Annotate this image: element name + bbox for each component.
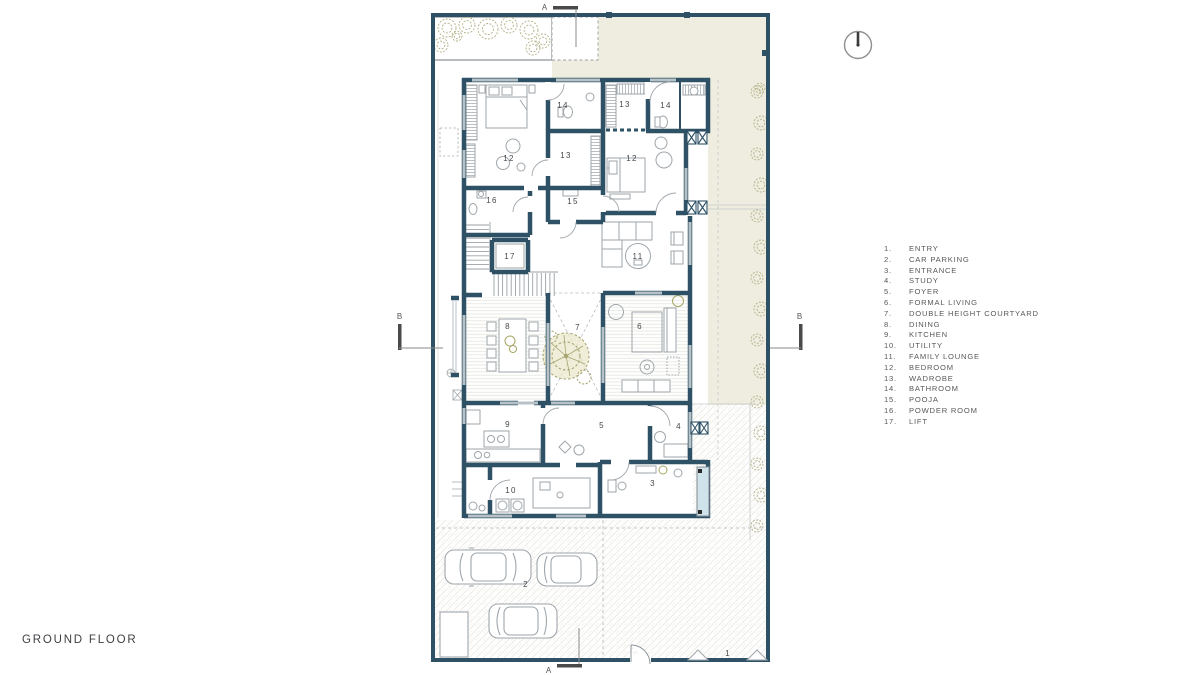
room-number-label: 4 (676, 422, 682, 431)
section-marker-b-left (398, 324, 443, 350)
legend-item-label: BATHROOM (909, 384, 1114, 395)
section-marker-b-right (770, 324, 803, 350)
legend-item-number: 9. (884, 330, 909, 341)
legend-item: 16.POWDER ROOM (884, 406, 1114, 417)
legend-item-number: 13. (884, 374, 909, 385)
room-number-label: 2 (523, 580, 529, 589)
legend-item: 17.LIFT (884, 417, 1114, 428)
room-number-label: 15 (567, 197, 579, 206)
legend-item-label: KITCHEN (909, 330, 1114, 341)
legend-item: 5.FOYER (884, 287, 1114, 298)
floor-plan-page: AABB 1413141213121615171187695410321 1.E… (0, 0, 1200, 675)
legend-item-label: FOYER (909, 287, 1114, 298)
legend-item: 9.KITCHEN (884, 330, 1114, 341)
north-compass-icon (845, 32, 872, 59)
room-number-label: 16 (486, 196, 498, 205)
legend-item: 12.BEDROOM (884, 363, 1114, 374)
legend-item: 13.WADROBE (884, 374, 1114, 385)
room-number-label: 7 (575, 323, 581, 332)
legend-item: 2.CAR PARKING (884, 255, 1114, 266)
legend-item-label: ENTRY (909, 244, 1114, 255)
room-number-label: 17 (504, 252, 516, 261)
legend-item-label: ENTRANCE (909, 266, 1114, 277)
legend-item-number: 5. (884, 287, 909, 298)
room-number-label: 3 (650, 479, 656, 488)
car-icon (445, 548, 531, 586)
legend-item-label: LIFT (909, 417, 1114, 428)
legend-item-number: 16. (884, 406, 909, 417)
legend-item: 7.DOUBLE HEIGHT COURTYARD (884, 309, 1114, 320)
section-marker-label: B (397, 312, 403, 321)
legend-item-number: 8. (884, 320, 909, 331)
legend-item-label: CAR PARKING (909, 255, 1114, 266)
legend-item-number: 15. (884, 395, 909, 406)
legend-item-label: DOUBLE HEIGHT COURTYARD (909, 309, 1114, 320)
room-number-label: 5 (599, 421, 605, 430)
legend-item-number: 4. (884, 276, 909, 287)
legend: 1.ENTRY2.CAR PARKING3.ENTRANCE4.STUDY5.F… (884, 244, 1114, 428)
room-number-label: 13 (560, 151, 572, 160)
legend-item-label: DINING (909, 320, 1114, 331)
room-number-label: 12 (503, 154, 515, 163)
legend-item: 1.ENTRY (884, 244, 1114, 255)
legend-item: 3.ENTRANCE (884, 266, 1114, 277)
shaft-box (698, 131, 707, 144)
shaft-box (691, 422, 699, 434)
room-number-label: 1 (725, 649, 731, 658)
room-number-label: 14 (660, 101, 672, 110)
legend-item-number: 10. (884, 341, 909, 352)
room-number-label: 13 (619, 100, 631, 109)
legend-item-label: UTILITY (909, 341, 1114, 352)
legend-item: 14.BATHROOM (884, 384, 1114, 395)
garden-bed (433, 17, 598, 60)
legend-item-label: POOJA (909, 395, 1114, 406)
room-number-label: 10 (505, 486, 517, 495)
room-number-label: 14 (557, 101, 569, 110)
legend-item-number: 14. (884, 384, 909, 395)
legend-item-number: 12. (884, 363, 909, 374)
shaft-box (687, 131, 696, 144)
section-marker-label: A (542, 3, 548, 12)
car-icon (537, 553, 597, 586)
floor-plan-title: GROUND FLOOR (22, 634, 138, 646)
room-number-label: 9 (505, 420, 511, 429)
legend-item-number: 3. (884, 266, 909, 277)
legend-item-label: FAMILY LOUNGE (909, 352, 1114, 363)
shaft-box (698, 201, 707, 214)
legend-item: 15.POOJA (884, 395, 1114, 406)
legend-item: 6.FORMAL LIVING (884, 298, 1114, 309)
legend-item: 10.UTILITY (884, 341, 1114, 352)
legend-item-label: STUDY (909, 276, 1114, 287)
legend-item-number: 11. (884, 352, 909, 363)
shaft-box (687, 201, 696, 214)
legend-item-number: 7. (884, 309, 909, 320)
legend-item-number: 6. (884, 298, 909, 309)
car-icon (489, 604, 557, 638)
legend-item-label: FORMAL LIVING (909, 298, 1114, 309)
legend-item: 8.DINING (884, 320, 1114, 331)
legend-item-label: POWDER ROOM (909, 406, 1114, 417)
legend-item-label: BEDROOM (909, 363, 1114, 374)
courtyard (543, 293, 603, 401)
legend-item-number: 1. (884, 244, 909, 255)
legend-item-number: 17. (884, 417, 909, 428)
legend-item-number: 2. (884, 255, 909, 266)
room-number-label: 6 (637, 322, 643, 331)
section-marker-label: B (797, 312, 803, 321)
legend-item-label: WADROBE (909, 374, 1114, 385)
section-marker-label: A (546, 666, 552, 675)
shaft-box (700, 422, 708, 434)
room-number-label: 11 (633, 252, 644, 261)
entrance-glass-door (697, 467, 709, 516)
room-number-label: 12 (626, 154, 638, 163)
legend-item: 4.STUDY (884, 276, 1114, 287)
room-number-label: 8 (505, 322, 511, 331)
legend-item: 11.FAMILY LOUNGE (884, 352, 1114, 363)
